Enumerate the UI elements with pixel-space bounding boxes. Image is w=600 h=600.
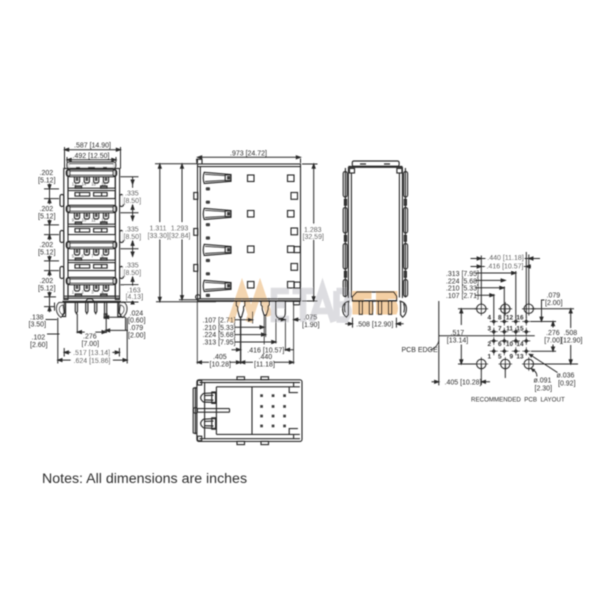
svg-text:[33.30]: [33.30]: [148, 233, 169, 240]
svg-text:8: 8: [498, 314, 502, 321]
svg-text:11: 11: [91, 218, 96, 223]
svg-text:.276: .276: [546, 330, 560, 337]
svg-text:1.293: 1.293: [171, 226, 189, 233]
svg-text:.405: .405: [213, 354, 227, 361]
svg-text:[12.90]: [12.90]: [561, 338, 582, 345]
svg-text:5: 5: [498, 354, 502, 361]
svg-text:[0.60]: [0.60]: [128, 318, 146, 325]
svg-text:.313 [7.95]: .313 [7.95]: [446, 271, 479, 278]
svg-text:PCB EDGE: PCB EDGE: [402, 347, 439, 354]
svg-text:.107 [2.71]: .107 [2.71]: [446, 293, 479, 300]
svg-text:.973 [24.72]: .973 [24.72]: [230, 150, 267, 157]
svg-text:.075: .075: [304, 314, 318, 321]
svg-text:[2.60]: [2.60]: [30, 342, 48, 349]
svg-text:[5.12]: [5.12]: [38, 249, 56, 256]
svg-text:.276: .276: [83, 334, 97, 341]
svg-text:[4.13]: [4.13]: [126, 294, 144, 301]
svg-text:.024: .024: [130, 310, 144, 317]
svg-text:.508: .508: [564, 330, 578, 337]
svg-text:.224 [5.68]: .224 [5.68]: [446, 278, 479, 285]
svg-text:[11.18]: [11.18]: [254, 362, 275, 369]
svg-text:.335: .335: [125, 191, 139, 198]
svg-text:11: 11: [506, 325, 513, 332]
svg-text:13: 13: [516, 354, 524, 361]
svg-text:.335: .335: [125, 227, 139, 234]
svg-text:.202: .202: [40, 278, 54, 285]
svg-text:2: 2: [487, 341, 491, 348]
svg-text:.440 [11.18]: .440 [11.18]: [487, 255, 524, 262]
svg-text:[8.50]: [8.50]: [124, 198, 142, 205]
svg-text:3: 3: [487, 325, 491, 332]
svg-text:1.283: 1.283: [304, 227, 322, 234]
svg-text:14: 14: [516, 341, 524, 348]
svg-text:.102: .102: [32, 335, 46, 342]
svg-text:4: 4: [487, 314, 491, 321]
svg-text:9: 9: [509, 354, 513, 361]
svg-text:12: 12: [506, 314, 514, 321]
svg-text:[0.92]: [0.92]: [558, 380, 576, 387]
svg-text:[5.12]: [5.12]: [38, 285, 56, 292]
svg-text:.624 [15.86]: .624 [15.86]: [74, 358, 111, 365]
svg-text:.405 [10.28]: .405 [10.28]: [445, 379, 482, 386]
svg-text:.202: .202: [40, 242, 54, 249]
svg-text:[32.84]: [32.84]: [169, 233, 190, 240]
svg-text:1: 1: [487, 354, 491, 361]
svg-text:.335: .335: [125, 263, 139, 270]
svg-text:.210 [5.33]: .210 [5.33]: [446, 286, 479, 293]
svg-text:[2.00]: [2.00]: [545, 300, 563, 307]
svg-text:RECOMMENDED PCB LAYOUT: RECOMMENDED PCB LAYOUT: [471, 397, 565, 404]
svg-text:.138: .138: [30, 314, 44, 321]
svg-text:.107 [2.71]: .107 [2.71]: [203, 317, 236, 324]
svg-text:[7.00]: [7.00]: [544, 338, 562, 345]
svg-text:.202: .202: [40, 170, 54, 177]
svg-text:[8.50]: [8.50]: [124, 234, 142, 241]
svg-text:.313 [7.95]: .313 [7.95]: [203, 340, 236, 347]
svg-text:6: 6: [498, 341, 502, 348]
svg-text:10: 10: [506, 341, 514, 348]
svg-text:15: 15: [91, 182, 96, 187]
svg-text:.508 [12.90]: .508 [12.90]: [356, 321, 393, 328]
svg-text:[10.28]: [10.28]: [210, 362, 231, 369]
svg-text:.492 [12.50]: .492 [12.50]: [73, 153, 110, 160]
svg-text:[32.59]: [32.59]: [303, 234, 324, 241]
svg-text:.079: .079: [547, 292, 561, 299]
svg-text:.416 [10.57]: .416 [10.57]: [487, 264, 524, 271]
svg-text:.587 [14.90]: .587 [14.90]: [74, 142, 111, 149]
svg-text:14: 14: [82, 182, 87, 187]
svg-text:[2.00]: [2.00]: [128, 333, 146, 340]
svg-text:16: 16: [516, 314, 524, 321]
svg-text:[2.30]: [2.30]: [535, 386, 553, 393]
svg-text:ø.091: ø.091: [534, 378, 552, 385]
svg-text:[13.14]: [13.14]: [447, 338, 468, 345]
svg-text:1.311: 1.311: [150, 226, 167, 233]
svg-text:15: 15: [516, 325, 524, 332]
svg-text:.517: .517: [451, 330, 465, 337]
svg-text:.224 [5.68]: .224 [5.68]: [203, 332, 236, 339]
svg-text:7: 7: [498, 325, 502, 332]
svg-text:.210 [5.33]: .210 [5.33]: [203, 325, 236, 332]
svg-text:[8.50]: [8.50]: [124, 270, 142, 277]
svg-text:10: 10: [82, 218, 87, 223]
svg-text:[5.12]: [5.12]: [38, 177, 56, 184]
svg-text:.517 [13.14]: .517 [13.14]: [73, 350, 110, 357]
svg-text:Notes: All dimensions are inch: Notes: All dimensions are inches: [42, 471, 247, 487]
svg-text:.440: .440: [259, 354, 273, 361]
svg-text:.079: .079: [130, 325, 144, 332]
svg-text:[7.00]: [7.00]: [82, 341, 100, 348]
svg-text:.202: .202: [40, 206, 54, 213]
svg-text:ø.036: ø.036: [557, 372, 575, 379]
svg-text:[3.50]: [3.50]: [29, 322, 47, 329]
svg-text:[1.90]: [1.90]: [302, 322, 320, 329]
svg-text:[5.12]: [5.12]: [38, 213, 56, 220]
